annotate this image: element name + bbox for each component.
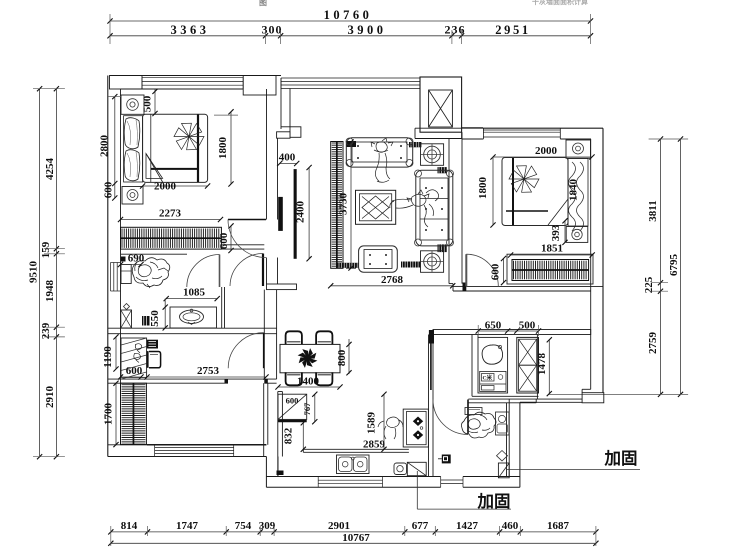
svg-text:690: 690	[128, 253, 145, 265]
svg-text:1427: 1427	[456, 520, 479, 532]
svg-text:2273: 2273	[159, 208, 182, 220]
svg-text:500: 500	[142, 95, 154, 112]
svg-text:2859: 2859	[363, 439, 386, 451]
svg-text:2759: 2759	[647, 332, 659, 355]
svg-text:2400: 2400	[295, 201, 307, 224]
svg-text:800: 800	[336, 349, 348, 366]
svg-text:550: 550	[149, 310, 161, 327]
svg-text:1851: 1851	[541, 243, 563, 255]
svg-text:300: 300	[262, 23, 283, 37]
svg-text:754: 754	[235, 520, 252, 532]
svg-text:600: 600	[218, 232, 230, 249]
svg-text:3811: 3811	[647, 200, 659, 221]
svg-text:1800: 1800	[217, 137, 229, 160]
svg-text:1589: 1589	[366, 412, 378, 435]
svg-text:1687: 1687	[547, 520, 570, 532]
svg-text:3363: 3363	[171, 23, 210, 37]
svg-text:225: 225	[643, 276, 655, 293]
svg-text:600: 600	[490, 263, 502, 280]
svg-text:10767: 10767	[342, 532, 370, 544]
svg-text:677: 677	[412, 520, 429, 532]
svg-text:1700: 1700	[103, 403, 115, 426]
svg-text:2951: 2951	[495, 23, 530, 37]
svg-text:图: 图	[259, 0, 267, 7]
svg-text:干灰墙面面积计算: 干灰墙面面积计算	[532, 0, 588, 6]
svg-text:1478: 1478	[536, 353, 548, 376]
svg-text:2901: 2901	[328, 520, 350, 532]
svg-text:9510: 9510	[28, 261, 40, 284]
svg-text:600: 600	[126, 365, 143, 377]
svg-text:2768: 2768	[381, 274, 404, 286]
svg-text:加固: 加固	[477, 492, 511, 511]
svg-text:159: 159	[40, 241, 52, 258]
svg-text:460: 460	[502, 520, 519, 532]
svg-text:3900: 3900	[348, 23, 387, 37]
svg-text:650: 650	[485, 320, 502, 332]
svg-text:2000: 2000	[154, 181, 177, 193]
svg-text:2753: 2753	[197, 365, 220, 377]
svg-text:767: 767	[302, 402, 312, 416]
svg-text:236: 236	[445, 23, 466, 37]
svg-text:500: 500	[519, 320, 536, 332]
svg-text:C米: C米	[483, 374, 493, 382]
svg-text:309: 309	[259, 520, 276, 532]
svg-text:3730: 3730	[338, 193, 350, 216]
svg-text:600: 600	[286, 396, 299, 406]
svg-text:2910: 2910	[44, 386, 56, 409]
svg-text:814: 814	[121, 520, 138, 532]
svg-text:1190: 1190	[102, 346, 114, 368]
svg-text:600: 600	[103, 181, 115, 198]
svg-text:1085: 1085	[183, 287, 206, 299]
svg-text:400: 400	[279, 152, 296, 164]
svg-text:加固: 加固	[604, 449, 638, 468]
svg-text:832: 832	[283, 427, 295, 444]
svg-text:6795: 6795	[668, 254, 680, 277]
svg-text:2000: 2000	[535, 145, 558, 157]
svg-text:1800: 1800	[477, 177, 489, 200]
svg-text:1400: 1400	[297, 376, 320, 388]
svg-text:10760: 10760	[324, 8, 373, 22]
svg-text:1747: 1747	[176, 520, 199, 532]
svg-text:4254: 4254	[44, 158, 56, 181]
svg-text:1948: 1948	[44, 280, 56, 303]
svg-text:393: 393	[550, 224, 562, 241]
svg-text:1840: 1840	[568, 179, 580, 202]
svg-text:2800: 2800	[99, 135, 111, 158]
